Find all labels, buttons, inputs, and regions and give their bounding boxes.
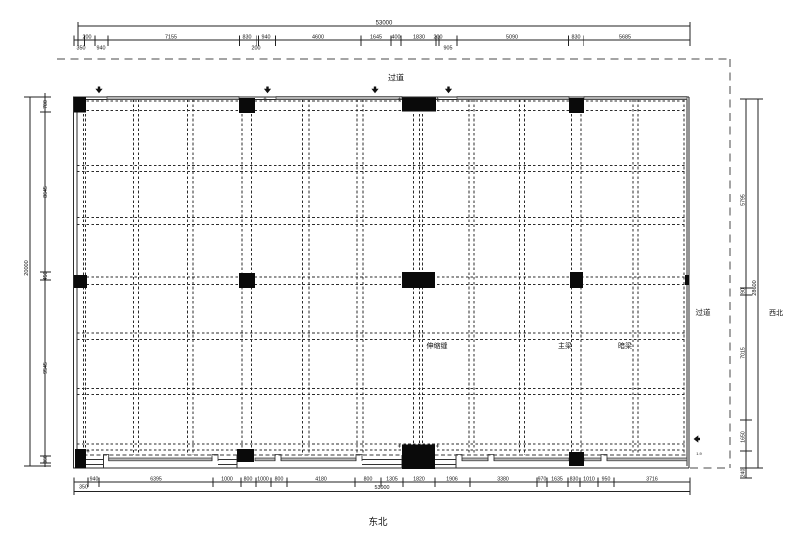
svg-text:950: 950	[602, 477, 611, 483]
svg-text:940: 940	[90, 477, 99, 483]
svg-text:5090: 5090	[506, 34, 518, 40]
svg-text:8645: 8645	[43, 186, 49, 198]
svg-text:450: 450	[43, 272, 49, 281]
svg-text:过道: 过道	[696, 307, 711, 317]
svg-text:350: 350	[77, 46, 86, 52]
svg-text:1000: 1000	[257, 477, 269, 483]
svg-text:800: 800	[275, 477, 284, 483]
svg-text:6395: 6395	[150, 477, 162, 483]
svg-text:360: 360	[43, 455, 49, 464]
svg-text:1645: 1645	[370, 34, 382, 40]
svg-text:200: 200	[434, 34, 443, 40]
svg-text:940: 940	[97, 46, 106, 52]
svg-text:830: 830	[570, 477, 579, 483]
svg-text:7155: 7155	[165, 34, 177, 40]
svg-text:1820: 1820	[413, 477, 425, 483]
svg-text:5685: 5685	[619, 34, 631, 40]
svg-text:1830: 1830	[413, 34, 425, 40]
svg-text:970: 970	[538, 477, 547, 483]
svg-text:东北: 东北	[368, 516, 388, 528]
svg-text:5795: 5795	[741, 194, 747, 206]
svg-text:9545: 9545	[43, 362, 49, 374]
svg-text:830: 830	[572, 34, 581, 40]
svg-text:1.9: 1.9	[696, 451, 702, 456]
svg-text:200: 200	[83, 34, 92, 40]
svg-text:28600: 28600	[752, 280, 758, 296]
svg-text:940: 940	[262, 34, 271, 40]
svg-text:830: 830	[243, 34, 252, 40]
svg-text:1010: 1010	[583, 477, 595, 483]
svg-text:伸缩缝: 伸缩缝	[427, 341, 448, 350]
svg-text:1635: 1635	[551, 477, 563, 483]
svg-text:主梁: 主梁	[558, 341, 572, 350]
svg-text:1906: 1906	[446, 477, 458, 483]
svg-text:西北: 西北	[769, 309, 783, 317]
svg-text:200: 200	[252, 46, 261, 52]
svg-text:400: 400	[392, 34, 401, 40]
svg-text:3716: 3716	[646, 477, 658, 483]
svg-text:20000: 20000	[24, 260, 30, 276]
svg-text:7015: 7015	[741, 347, 747, 359]
svg-text:90: 90	[741, 288, 747, 294]
svg-text:4600: 4600	[312, 34, 324, 40]
svg-text:53000: 53000	[376, 21, 393, 27]
svg-text:1000: 1000	[221, 477, 233, 483]
svg-text:过道: 过道	[388, 73, 404, 83]
svg-text:240: 240	[741, 469, 747, 478]
svg-text:4180: 4180	[315, 477, 327, 483]
svg-text:1305: 1305	[386, 477, 398, 483]
svg-text:暗梁: 暗梁	[618, 341, 632, 350]
svg-text:53000: 53000	[375, 485, 390, 491]
svg-text:905: 905	[444, 46, 453, 52]
svg-text:800: 800	[244, 477, 253, 483]
svg-text:800: 800	[364, 477, 373, 483]
svg-text:700: 700	[43, 100, 49, 109]
svg-text:1650: 1650	[741, 431, 747, 443]
svg-text:350: 350	[79, 485, 88, 491]
svg-text:3380: 3380	[497, 477, 509, 483]
